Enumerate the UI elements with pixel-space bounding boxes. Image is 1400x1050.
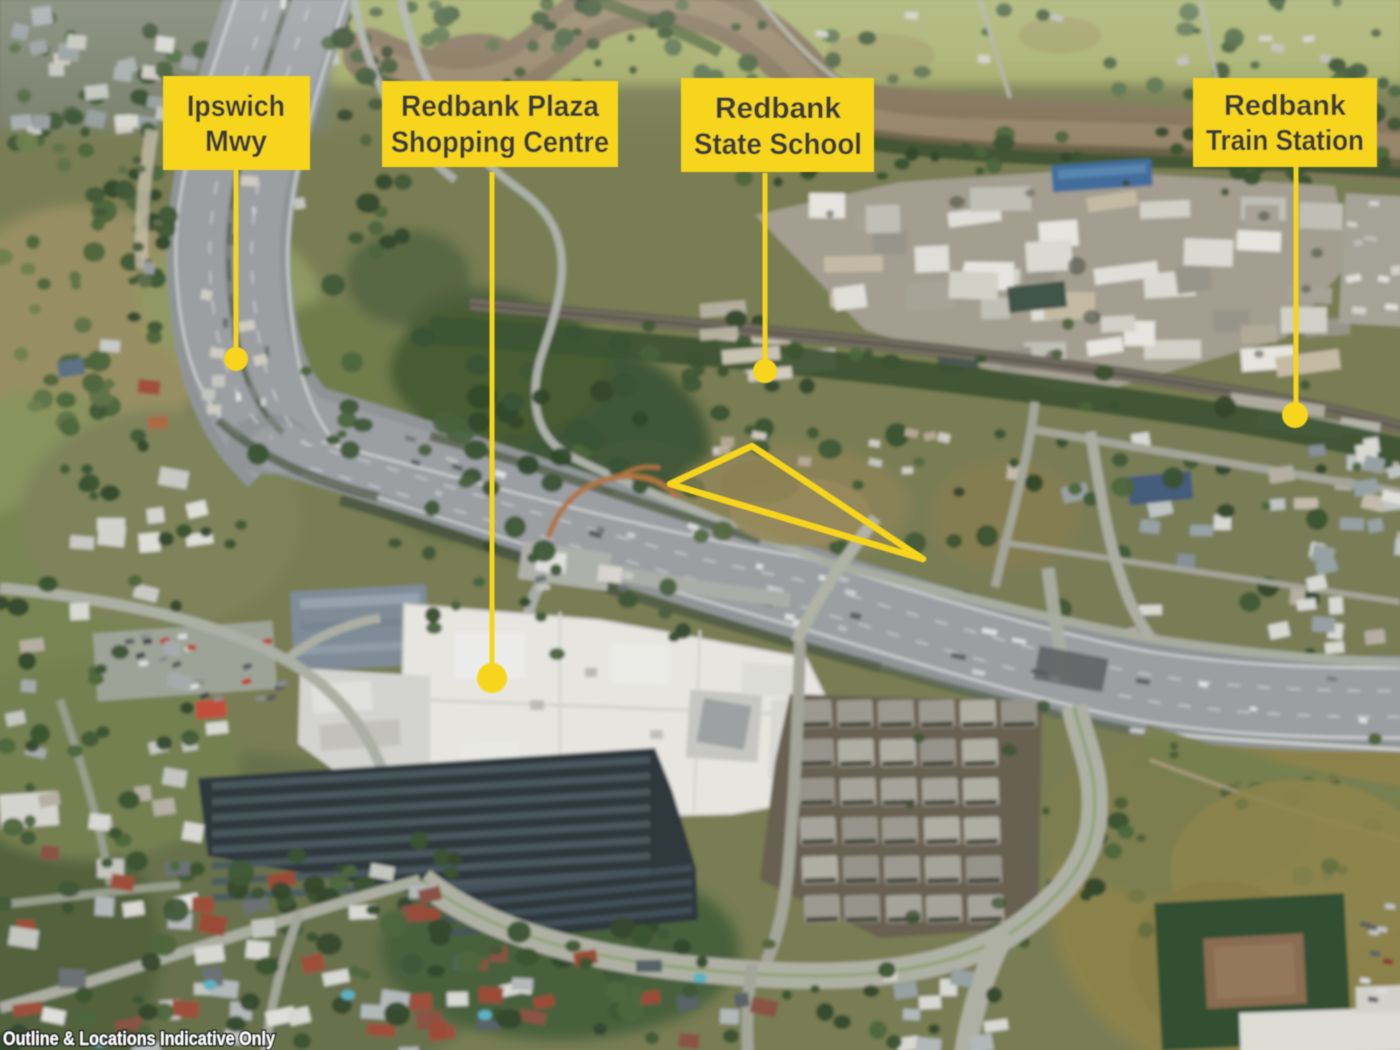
svg-text:Mwy: Mwy	[205, 125, 267, 158]
svg-text:Shopping Centre: Shopping Centre	[391, 126, 609, 159]
svg-text:Train Station: Train Station	[1206, 125, 1364, 157]
svg-text:Redbank: Redbank	[715, 92, 841, 125]
svg-text:State School: State School	[694, 128, 862, 161]
svg-text:Ipswich: Ipswich	[187, 90, 285, 123]
svg-text:Outline & Locations Indicative: Outline & Locations Indicative Only	[3, 1029, 275, 1050]
svg-text:Redbank: Redbank	[1224, 90, 1347, 122]
svg-text:Redbank Plaza: Redbank Plaza	[401, 90, 599, 123]
